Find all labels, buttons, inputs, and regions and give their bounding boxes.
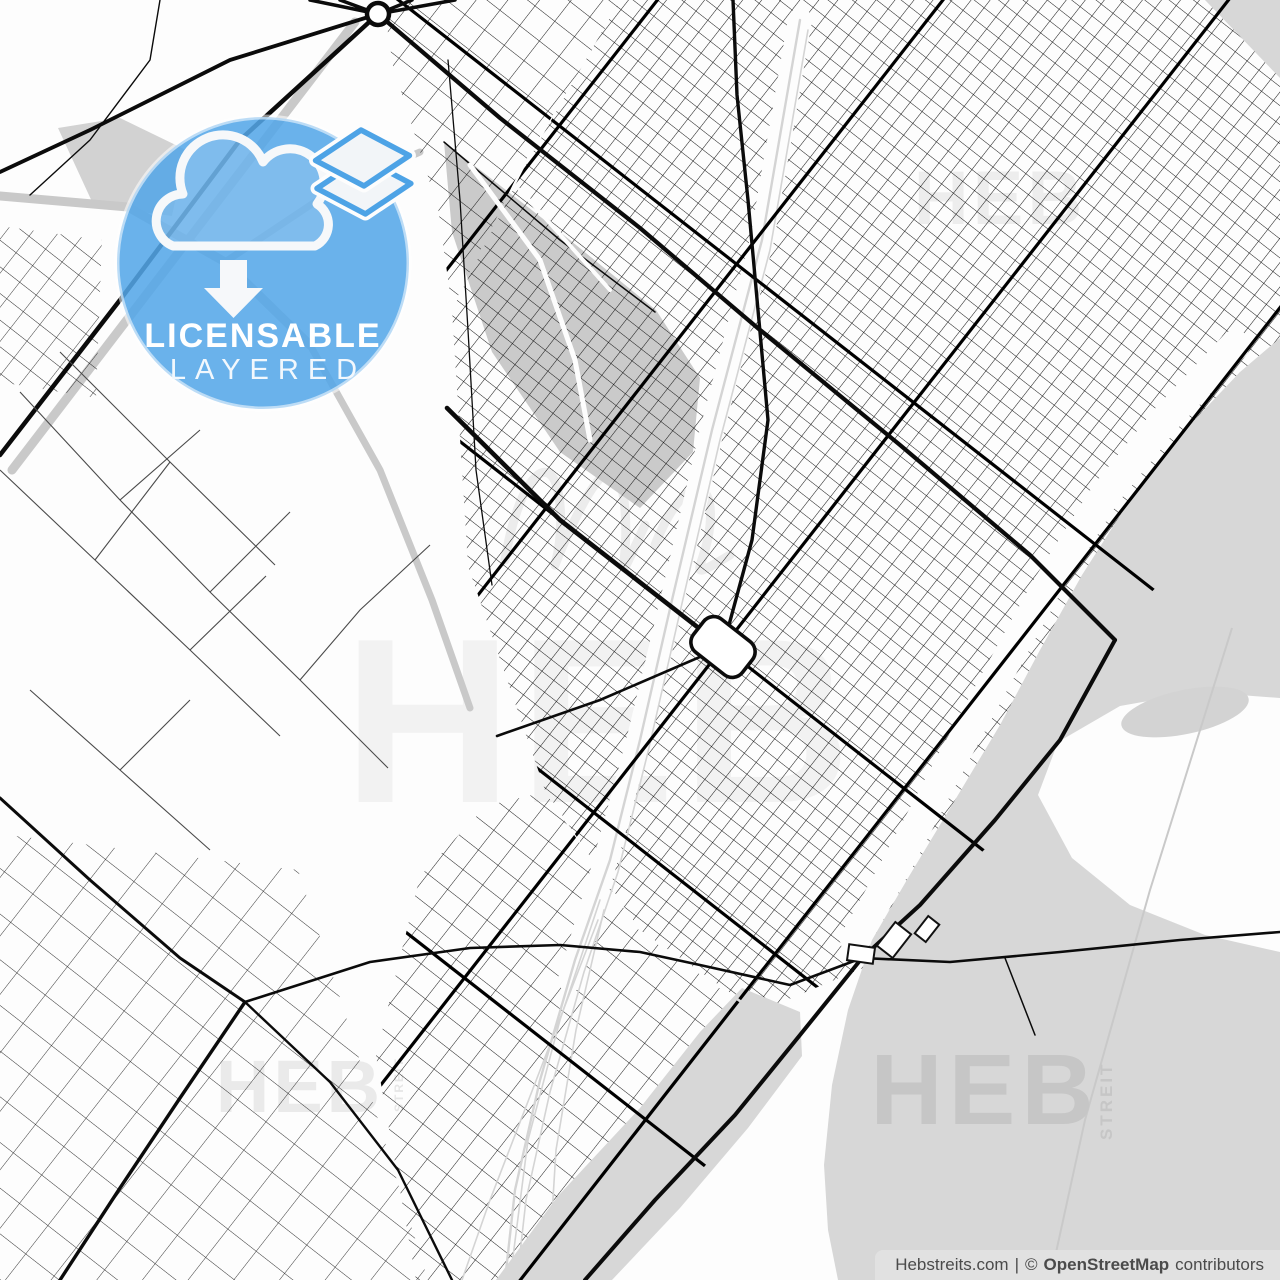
attribution-copyright: © (1025, 1255, 1038, 1275)
roundabout (367, 3, 389, 25)
watermark-bottom-right: HEB (870, 1034, 1099, 1146)
attribution-suffix: contributors (1175, 1255, 1264, 1275)
badge-title: LICENSABLE (144, 317, 381, 355)
map-canvas: HEB HEB STREIT HEB HEB STREIT (0, 0, 1280, 1280)
licensable-badge: LICENSABLE LAYERED (117, 117, 412, 409)
map-poster-preview: HEB HEB STREIT HEB HEB STREIT (0, 0, 1280, 1280)
attribution-site-link[interactable]: Hebstreits.com (895, 1255, 1008, 1275)
watermark-bottom-right-vertical: STREIT (1097, 1062, 1116, 1140)
small-town-grid-west (0, 226, 102, 398)
attribution-separator: | (1015, 1255, 1019, 1275)
attribution-bar: Hebstreits.com | © OpenStreetMap contrib… (875, 1250, 1280, 1280)
attribution-osm-link[interactable]: OpenStreetMap (1044, 1255, 1170, 1275)
badge-subtitle: LAYERED (170, 354, 366, 386)
